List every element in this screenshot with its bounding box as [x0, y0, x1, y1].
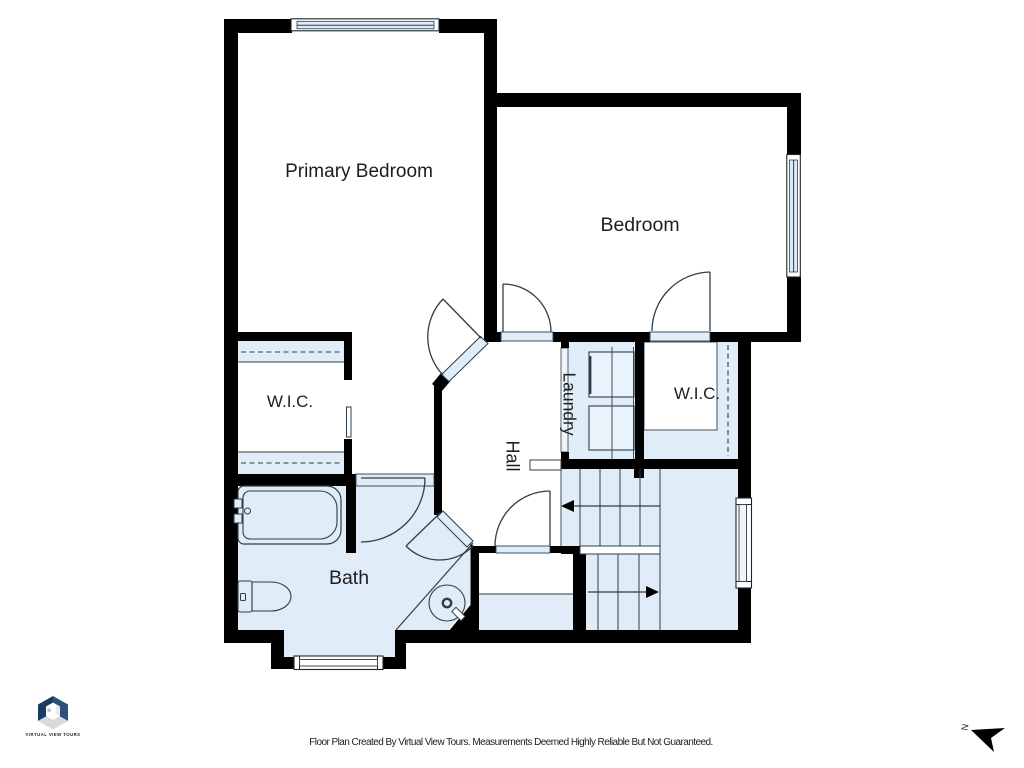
svg-text:W.I.C.: W.I.C. [267, 392, 313, 411]
svg-text:VIRTUAL VIEW TOURS: VIRTUAL VIEW TOURS [26, 732, 81, 737]
svg-text:Hall: Hall [503, 440, 523, 471]
svg-text:Bedroom: Bedroom [600, 214, 679, 236]
svg-text:W.I.C.: W.I.C. [674, 384, 720, 403]
svg-text:N: N [959, 723, 970, 731]
svg-text:Laundry: Laundry [560, 372, 580, 435]
svg-text:Floor Plan Created By Virtual: Floor Plan Created By Virtual View Tours… [309, 737, 713, 748]
svg-text:Primary Bedroom: Primary Bedroom [285, 161, 433, 182]
svg-text:Bath: Bath [329, 567, 369, 589]
